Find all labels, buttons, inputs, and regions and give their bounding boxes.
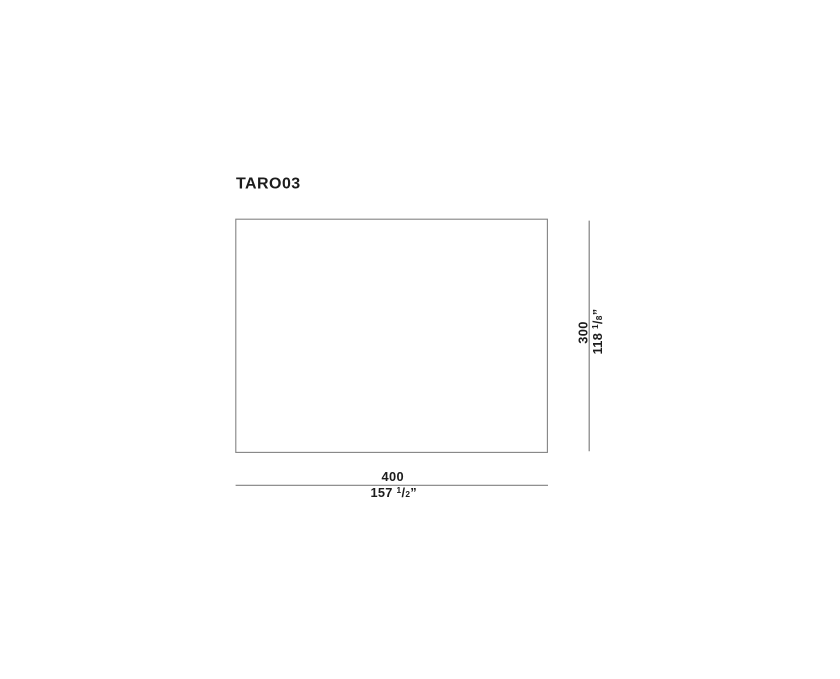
svg-text:118 1/8”: 118 1/8”: [590, 309, 605, 355]
svg-text:TARO03: TARO03: [236, 176, 301, 193]
svg-text:157 1/2”: 157 1/2”: [370, 485, 417, 500]
svg-text:300: 300: [575, 321, 590, 344]
svg-text:400: 400: [382, 469, 405, 484]
